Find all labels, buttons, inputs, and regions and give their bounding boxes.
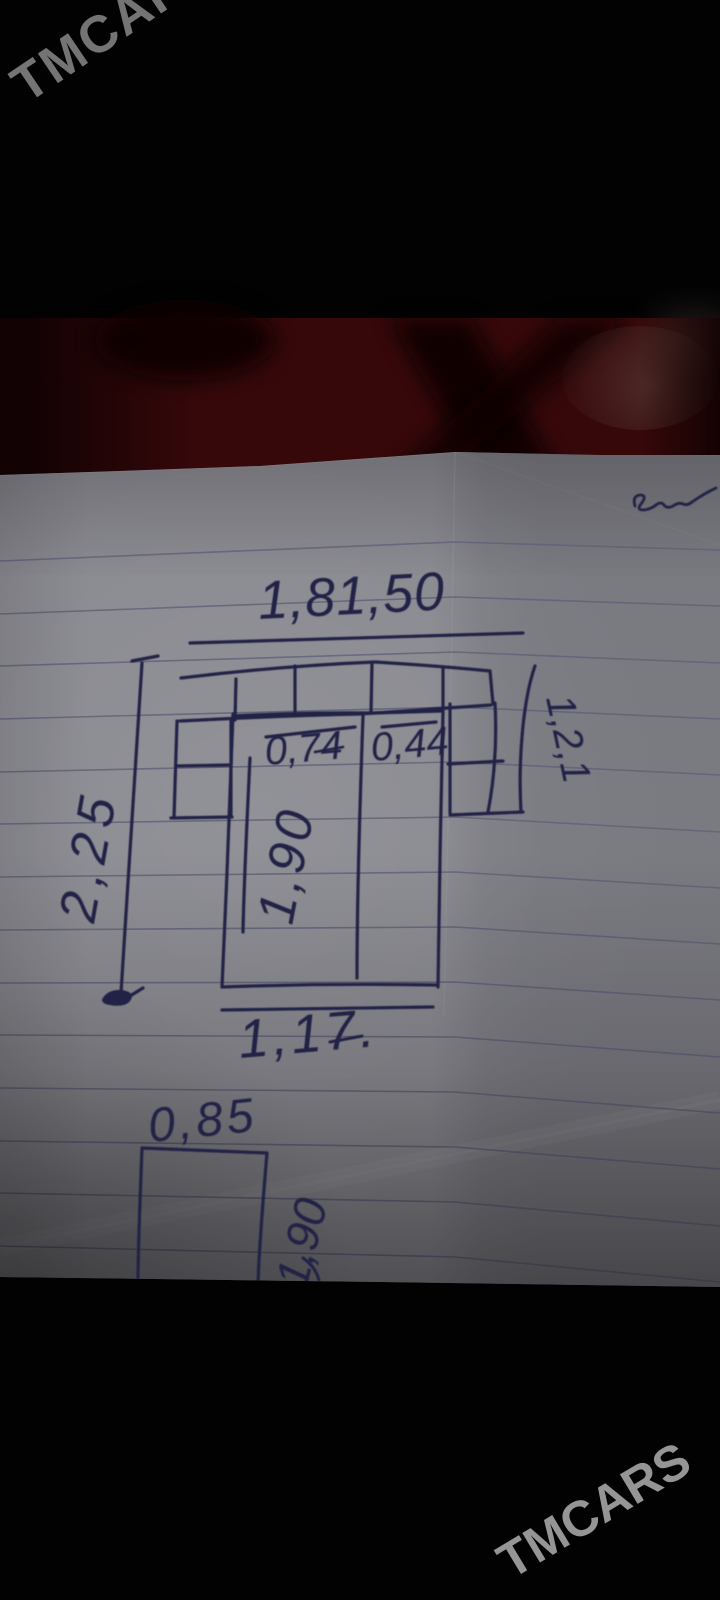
- svg-text:0,44: 0,44: [369, 719, 450, 770]
- svg-text:1,17.: 1,17.: [236, 998, 381, 1070]
- svg-text:0,74: 0,74: [263, 723, 344, 774]
- svg-text:1,81,50: 1,81,50: [256, 561, 446, 631]
